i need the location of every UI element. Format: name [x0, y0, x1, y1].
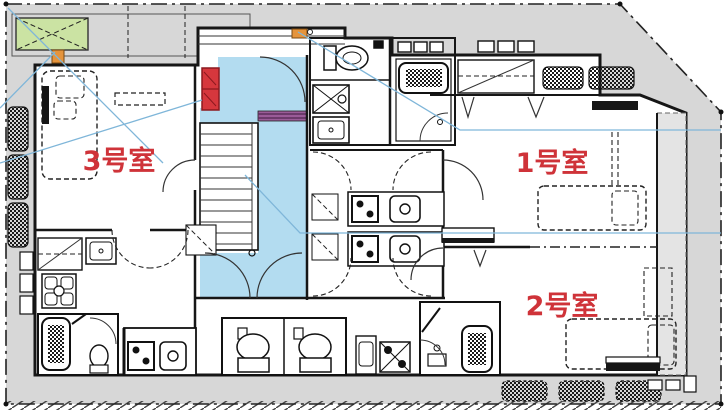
- entrance-step-mat: [258, 111, 307, 121]
- room-2-label: 2号室: [526, 290, 599, 322]
- entry-mat-gate: [52, 50, 64, 63]
- planter: [16, 18, 88, 50]
- sink-icon-north: [313, 117, 349, 143]
- road-edge-hatch: [6, 401, 721, 410]
- room-1-label: 1号室: [516, 147, 589, 179]
- floor-plan: 3号室 1号室 2号室: [0, 0, 727, 410]
- washer-icon-west: [42, 274, 76, 308]
- bicycle-parking-west: [8, 107, 28, 247]
- counter-room2: [442, 228, 494, 243]
- kitchen-south: [124, 328, 196, 375]
- floor-plan-canvas: 3号室 1号室 2号室: [0, 0, 727, 410]
- storage-boxes-west: [20, 252, 33, 314]
- room-3-label: 3号室: [83, 145, 156, 177]
- sink-icon-west: [86, 238, 116, 264]
- utility-shelf: [458, 60, 534, 93]
- kitchenette-room1: [348, 192, 444, 226]
- bicycle-parking-south: [502, 381, 661, 401]
- bathroom-west: [38, 314, 118, 375]
- east-eaves-strip: [657, 113, 686, 375]
- laundry-south: [356, 336, 410, 374]
- shoe-locker: [202, 68, 219, 110]
- kitchenette-room2: [348, 232, 444, 266]
- toilet-stalls-south: [222, 318, 346, 375]
- washer-icon-north: [313, 85, 349, 113]
- balcony-rail: [592, 101, 638, 110]
- shelf-unit: [38, 238, 82, 270]
- bathroom-room2: [420, 302, 500, 375]
